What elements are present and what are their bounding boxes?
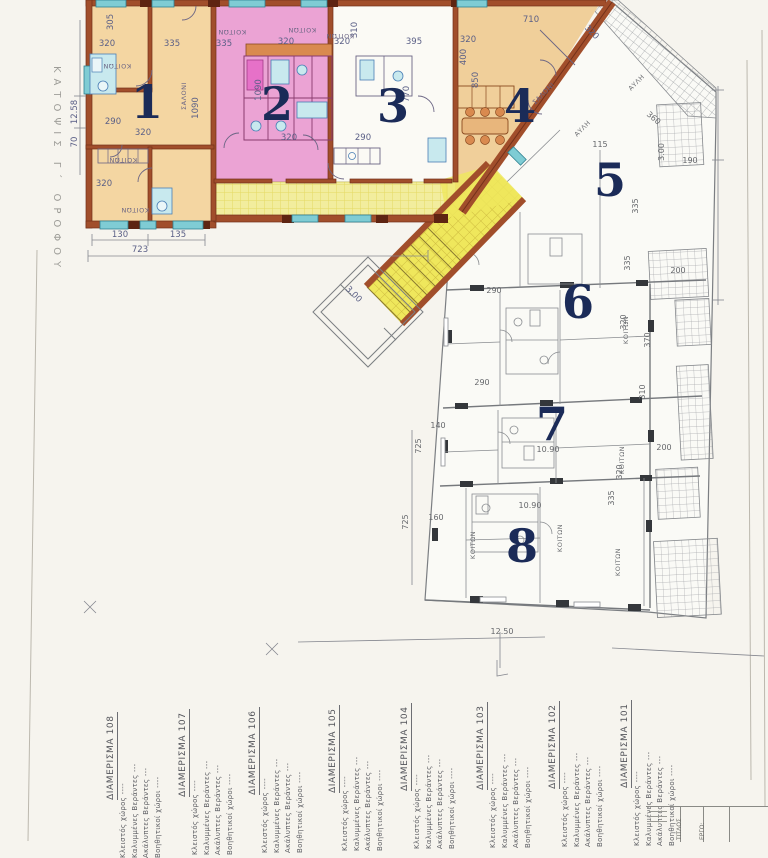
room-label-bedroom: ΚΟΙΤΩΝ — [288, 26, 316, 34]
dim-label: 725 — [414, 438, 423, 453]
schedule-row: Κλειστός χώρος ---- — [118, 618, 130, 858]
dim-label: 335 — [164, 39, 180, 49]
schedule-row: Κλειστός χώρος ---- — [190, 615, 202, 855]
dim-label: 335 — [216, 39, 232, 49]
dim-label: 290 — [105, 117, 121, 127]
dim-label: 335 — [623, 255, 632, 270]
schedule-column-104: ΔΙΑΜΕΡΙΣΜΑ 104 Κλειστός χώρος ---- Καλυμ… — [392, 609, 458, 849]
dim-label: 370 — [643, 332, 652, 347]
apartment-3-number: 3 — [377, 79, 409, 133]
schedule-row: Καλυμμένες Βεράντες --- — [424, 609, 436, 849]
dim-label: 115 — [592, 140, 607, 149]
title-block-cell: ΕΡΓΟ: — [704, 807, 731, 842]
schedule-row: Καλυμμένες Βεράντες --- — [202, 615, 214, 855]
schedule-column-header: ΔΙΑΜΕΡΙΣΜΑ 105 — [328, 705, 340, 793]
schedule-column-header: ΔΙΑΜΕΡΙΣΜΑ 102 — [548, 701, 560, 789]
schedule-row: Βοηθητικοί χώροι ---- — [153, 618, 165, 858]
schedule-column-102: ΔΙΑΜΕΡΙΣΜΑ 102 Κλειστός χώρος ---- Καλυμ… — [540, 607, 606, 847]
schedule-column-header: ΔΙΑΜΕΡΙΣΜΑ 103 — [476, 702, 488, 790]
dim-label: 710 — [523, 15, 539, 25]
room-label-bedroom: ΚΟΙΤΩΝ — [556, 524, 564, 552]
title-block-label: ΕΡΓΟ: — [699, 823, 706, 841]
schedule-column-108: ΔΙΑΜΕΡΙΣΜΑ 108 Κλειστός χώρος ---- Καλυμ… — [98, 618, 164, 858]
room-label-bedroom: ΚΟΙΤΩΝ — [109, 156, 137, 164]
dim-label: 200 — [670, 266, 685, 275]
dim-label: 320 — [99, 39, 115, 49]
dim-label: 140 — [430, 421, 445, 430]
dim-label: 190 — [682, 156, 697, 165]
schedule-column-header: ΔΙΑΜΕΡΙΣΜΑ 107 — [178, 709, 190, 797]
dim-label: 335 — [607, 490, 616, 505]
schedule-row: Βοηθητικοί χώροι ---- — [375, 611, 387, 851]
dim-label: 400 — [459, 49, 469, 65]
schedule-row: Ακάλυπτες Βεράντες --- — [363, 611, 375, 851]
schedule-row: Βοηθητικοί χώροι ---- — [595, 607, 607, 847]
dim-label: 305 — [106, 14, 116, 30]
schedule-column-header: ΔΙΑΜΕΡΙΣΜΑ 106 — [248, 707, 260, 795]
dim-label: 160 — [428, 513, 443, 522]
schedule-row: Βοηθητικοί χώροι ---- — [295, 613, 307, 853]
room-label-bedroom: ΚΟΙΤΩΝ — [614, 548, 622, 576]
schedule-row: Κλειστός χώρος ---- — [560, 607, 572, 847]
schedule-row: Βοηθητικοί χώροι ---- — [225, 615, 237, 855]
apartment-4-number: 4 — [504, 79, 536, 133]
schedule-column-header: ΔΙΑΜΕΡΙΣΜΑ 108 — [106, 712, 118, 800]
dim-label: 335 — [631, 198, 640, 213]
dim-label: 395 — [406, 37, 422, 47]
dim-label: 290 — [486, 286, 501, 295]
schedule-row: Κλειστός χώρος ---- — [340, 611, 352, 851]
title-block-empty-cell — [730, 807, 768, 842]
dim-label: 310 — [638, 384, 647, 399]
dim-label: 290 — [355, 133, 371, 143]
dim-label: 70 — [70, 137, 80, 148]
schedule-row: Βοηθητικοί χώροι ---- — [447, 609, 459, 849]
schedule-row: Κλειστός χώρος ---- — [412, 609, 424, 849]
dim-label: 320 — [135, 128, 151, 138]
dim-label: 1090 — [191, 97, 201, 119]
schedule-row: Κλειστός χώρος ---- — [260, 613, 272, 853]
schedule-column-header: ΔΙΑΜΕΡΙΣΜΑ 101 — [620, 700, 632, 788]
room-label-bedroom: ΚΟΙΤΩΝ — [618, 446, 626, 474]
dim-label: 200 — [656, 443, 671, 452]
schedule-row: Καλυμμένες Βεράντες --- — [272, 613, 284, 853]
dim-label: 320 — [278, 37, 294, 47]
dim-label: 850 — [471, 72, 481, 88]
apartment-7-number: 7 — [536, 397, 568, 451]
room-label-bedroom: ΚΟΙΤΩΝ — [326, 32, 354, 40]
dim-label: 12.58 — [70, 100, 80, 124]
room-label-bedroom: ΚΟΙΤΩΝ — [469, 531, 477, 559]
dim-label: 130 — [112, 230, 128, 240]
dim-label: 3.00 — [657, 143, 666, 161]
apartment-1-number: 1 — [131, 75, 163, 129]
scanned-floor-plan-sheet: 320 335 335 320 320 395 320 710 305 310 … — [0, 0, 768, 841]
dim-label: 3.00 — [343, 284, 363, 304]
dim-label: 723 — [132, 245, 148, 255]
apartment-5-number: 5 — [594, 153, 626, 207]
dim-label: 10.90 — [519, 501, 542, 510]
schedule-row: Ακάλυπτες Βεράντες --- — [583, 607, 595, 847]
schedule-row: Ακάλυπτες Βεράντες --- — [141, 618, 153, 858]
dim-label: 320 — [96, 179, 112, 189]
schedule-row: Ακάλυπτες Βεράντες --- — [511, 608, 523, 848]
dim-label: 320 — [281, 133, 297, 143]
apartment-6-number: 6 — [562, 275, 594, 329]
schedule-column-header: ΔΙΑΜΕΡΙΣΜΑ 104 — [400, 703, 412, 791]
dim-label: 135 — [170, 230, 186, 240]
schedule-column-106: ΔΙΑΜΕΡΙΣΜΑ 106 Κλειστός χώρος ---- Καλυμ… — [240, 613, 306, 853]
apartment-2-number: 2 — [261, 77, 293, 131]
room-label-bedroom: ΚΟΙΤΩΝ — [103, 62, 131, 70]
schedule-row: Ακάλυπτες Βεράντες --- — [283, 613, 295, 853]
dim-label: 725 — [401, 514, 410, 529]
room-label-bedroom: ΚΟΙΤΩΝ — [622, 316, 630, 344]
schedule-row: Κλειστός χώρος ---- — [488, 608, 500, 848]
schedule-row: Κλειστός χώρος ---- — [632, 606, 644, 846]
room-label-bedroom: ΚΟΙΤΩΝ — [121, 206, 149, 214]
apartment-8-number: 8 — [506, 519, 538, 573]
title-block: ΤΙΤΛΟΣ ΕΡΓΟ: — [646, 806, 768, 842]
schedule-row: Ακάλυπτες Βεράντες --- — [435, 609, 447, 849]
title-block-label: ΤΙΤΛΟΣ — [676, 818, 683, 840]
schedule-row: Καλυμμένες Βεράντες --- — [500, 608, 512, 848]
schedule-row: Ακάλυπτες Βεράντες --- — [213, 615, 225, 855]
schedule-row: Καλυμμένες Βεράντες --- — [352, 611, 364, 851]
schedule-row: Καλυμμένες Βεράντες --- — [572, 607, 584, 847]
schedule-column-105: ΔΙΑΜΕΡΙΣΜΑ 105 Κλειστός χώρος ---- Καλυμ… — [320, 611, 386, 851]
room-label-living: ΣΑΛΟΝΙ — [180, 82, 188, 110]
sheet-title-vertical: ΚΑΤΟΨΙΣ Γ΄ ΟΡΟΦΟΥ — [51, 66, 62, 273]
dim-label: 290 — [474, 378, 489, 387]
schedule-row: Καλυμμένες Βεράντες --- — [130, 618, 142, 858]
schedule-column-107: ΔΙΑΜΕΡΙΣΜΑ 107 Κλειστός χώρος ---- Καλυμ… — [170, 615, 236, 855]
room-label-bedroom: ΚΟΙΤΩΝ — [218, 28, 246, 36]
dim-label: 320 — [460, 35, 476, 45]
schedule-column-103: ΔΙΑΜΕΡΙΣΜΑ 103 Κλειστός χώρος ---- Καλυμ… — [468, 608, 534, 848]
schedule-row: Βοηθητικοί χώροι ---- — [523, 608, 535, 848]
